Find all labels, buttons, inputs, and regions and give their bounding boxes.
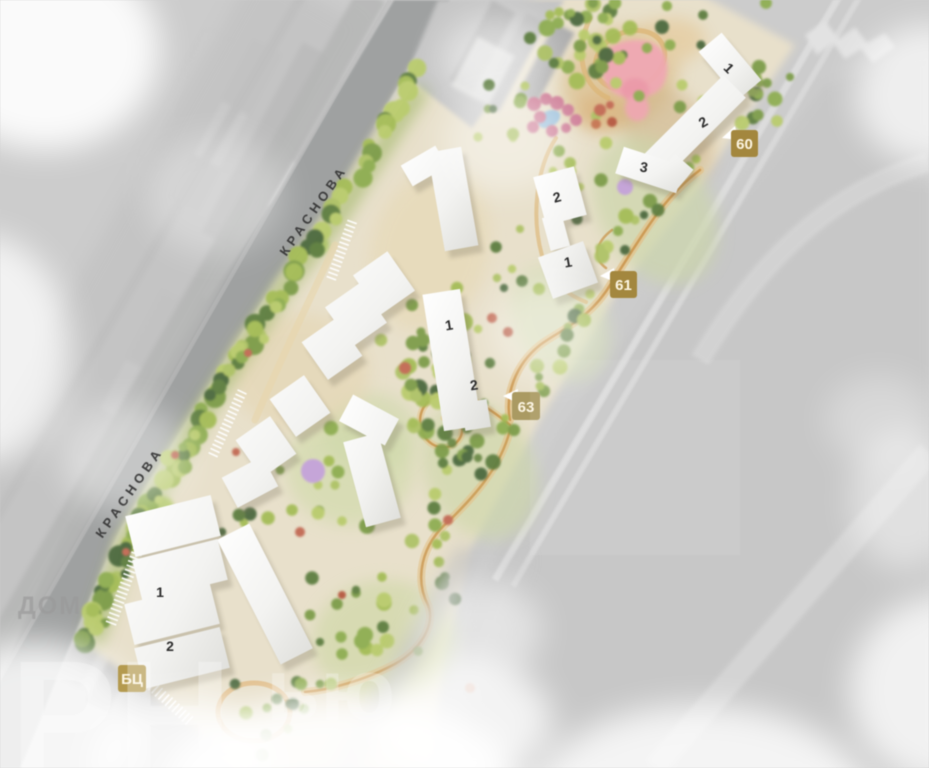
svg-text:ью: ью [266, 640, 395, 739]
svg-text:61: 61 [615, 277, 632, 294]
svg-text:РН: РН [10, 627, 232, 768]
svg-text:60: 60 [736, 136, 753, 153]
svg-text:ДОМ: ДОМ [18, 592, 82, 620]
svg-text:1: 1 [156, 584, 164, 600]
